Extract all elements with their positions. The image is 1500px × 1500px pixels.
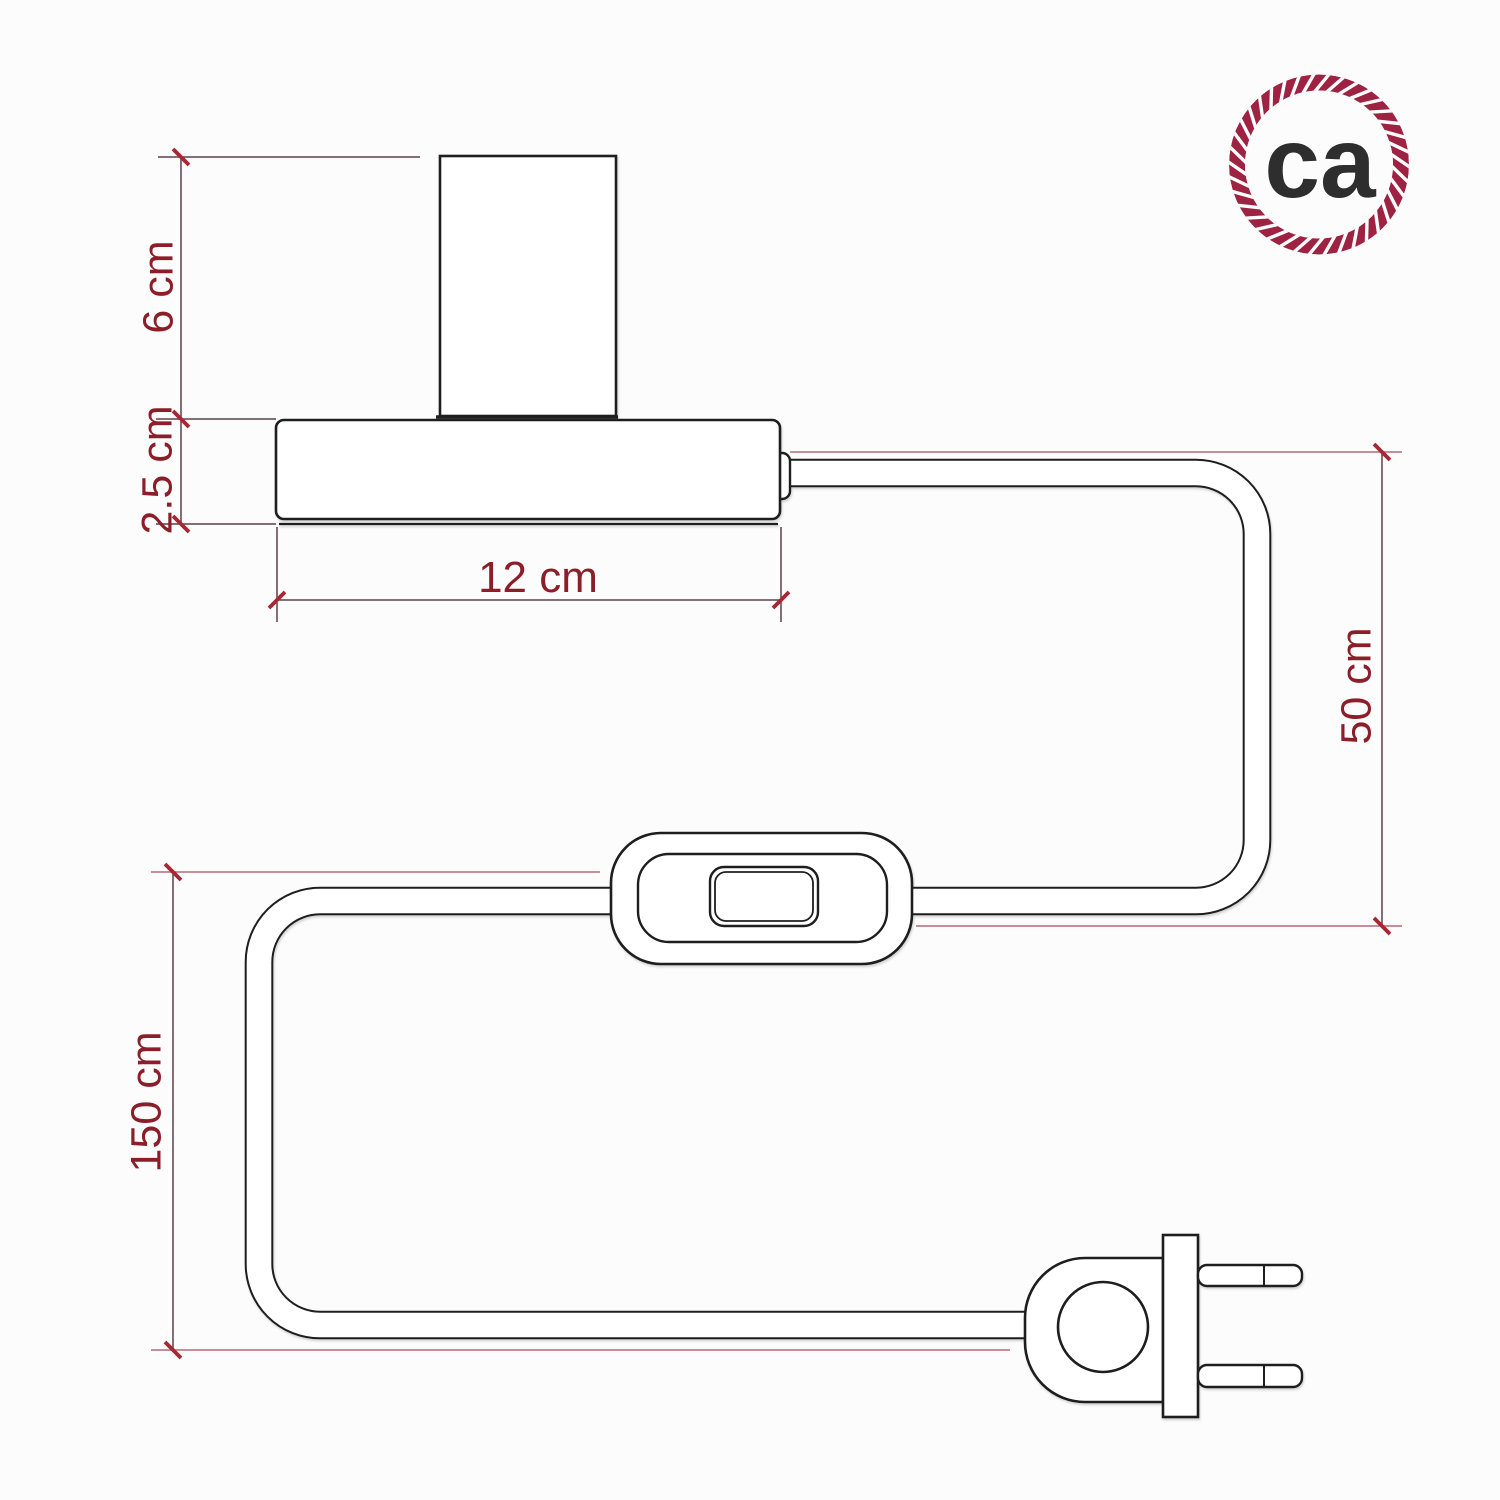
svg-text:6 cm: 6 cm — [135, 240, 183, 333]
svg-text:150 cm: 150 cm — [123, 1031, 171, 1172]
svg-text:12 cm: 12 cm — [478, 553, 598, 602]
svg-text:2.5 cm: 2.5 cm — [134, 405, 182, 534]
svg-text:50 cm: 50 cm — [1333, 627, 1381, 744]
svg-text:ca: ca — [1264, 107, 1377, 219]
